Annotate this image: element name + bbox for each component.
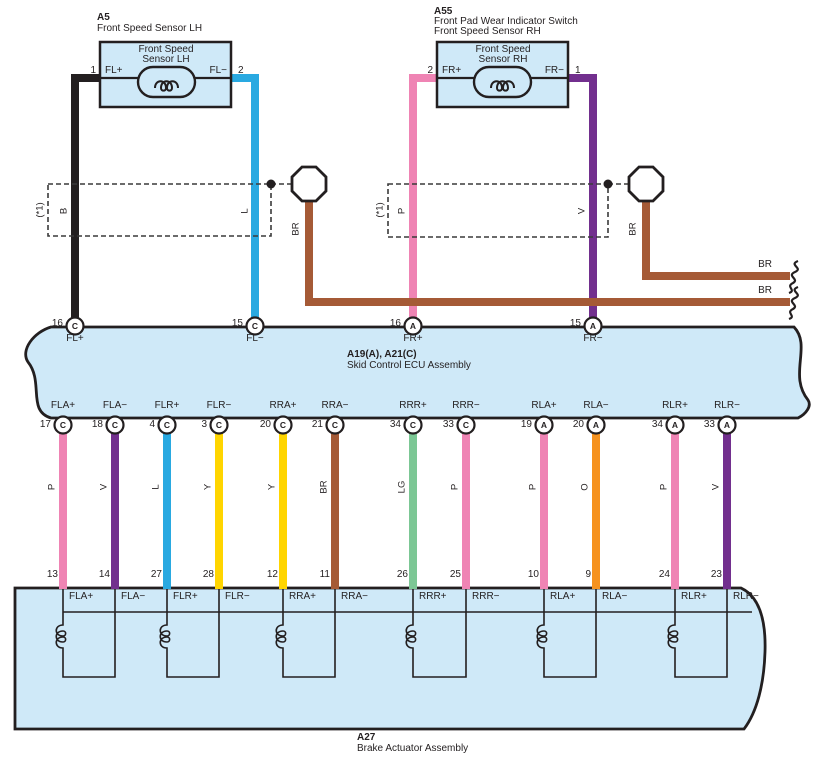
ecu-code: A19(A), A21(C): [347, 350, 417, 360]
wire-color-b: B: [59, 208, 69, 214]
br-run-upper-label: BR: [758, 260, 772, 270]
ecu-bottom-pin-label: RLR−: [714, 401, 740, 411]
wire-fl-plus-b: [75, 78, 101, 318]
wire-color-label: Y: [203, 484, 213, 490]
actuator-pin-label: RRR+: [419, 592, 447, 602]
actuator-pin-num: 27: [151, 570, 162, 580]
ecu-bottom-pin-num: 33: [443, 420, 454, 430]
ecu-top-pin-label: FR−: [583, 334, 602, 344]
wire-color-label: P: [528, 484, 538, 490]
sensor-lh-pin2-label: FL−: [209, 66, 227, 76]
actuator-pin-label: FLR−: [225, 592, 250, 602]
diagram-canvas: [0, 0, 815, 764]
actuator-pin-label: FLR+: [173, 592, 198, 602]
sensor-lh-inner-2: Sensor LH: [142, 55, 189, 65]
ecu-top-pin-label: FR+: [403, 334, 422, 344]
ecu-bottom-pin-num: 33: [704, 420, 715, 430]
sensor-lh-title: Front Speed Sensor LH: [97, 24, 202, 34]
actuator-pin-label: RLA+: [550, 592, 575, 602]
wire-color-label: O: [580, 483, 590, 490]
ecu-bottom-pin-num: 3: [201, 420, 207, 430]
sensor-rh-pin2-label: FR+: [442, 66, 461, 76]
ecu-bottom-pin-num: 21: [312, 420, 323, 430]
ecu-bottom-pin-conn: C: [280, 421, 286, 430]
actuator-pin-num: 13: [47, 570, 58, 580]
sensor-rh-pin2-num: 2: [427, 66, 433, 76]
sensor-rh-pin1-label: FR−: [545, 66, 564, 76]
ecu-bottom-pin-conn: C: [410, 421, 416, 430]
wire-color-label: P: [450, 484, 460, 490]
sensor-rh-inner-2: Sensor RH: [479, 55, 528, 65]
wiring-diagram: A5 Front Speed Sensor LH Front Speed Sen…: [0, 0, 815, 764]
ecu-bottom-pin-label: RLR+: [662, 401, 688, 411]
actuator-pin-num: 14: [99, 570, 110, 580]
ecu-bottom-pin-label: RRR−: [452, 401, 480, 411]
wire-color-label: BR: [319, 480, 329, 493]
ecu-top-pin-conn: A: [410, 322, 416, 331]
ecu-bottom-pin-conn: A: [724, 421, 730, 430]
ecu-name: Skid Control ECU Assembly: [347, 361, 471, 371]
ecu-bottom-pin-num: 34: [652, 420, 663, 430]
ecu-bottom-pin-num: 4: [149, 420, 155, 430]
ecu-bottom-pin-conn: C: [164, 421, 170, 430]
sensor-lh-pin1-label: FL+: [105, 66, 123, 76]
actuator-pin-label: RRA−: [341, 592, 368, 602]
actuator-band: [15, 588, 765, 729]
actuator-pin-num: 23: [711, 570, 722, 580]
junction-dot-right: [604, 180, 613, 189]
wire-color-l: L: [240, 208, 250, 213]
shield-box-left: [48, 184, 271, 236]
sensor-rh-title-2: Front Speed Sensor RH: [434, 27, 541, 37]
shield-left-note: (*1): [35, 202, 45, 217]
ecu-bottom-pin-conn: C: [60, 421, 66, 430]
sensor-lh-pin2-num: 2: [238, 66, 244, 76]
wire-fr-plus-p: [413, 78, 438, 318]
br-run-lower-label: BR: [758, 286, 772, 296]
actuator-pin-label: RRR−: [472, 592, 500, 602]
ecu-bottom-pin-conn: C: [216, 421, 222, 430]
ecu-bottom-pin-num: 18: [92, 420, 103, 430]
actuator-pin-num: 9: [585, 570, 591, 580]
actuator-pin-label: FLA+: [69, 592, 93, 602]
wire-color-br-right: BR: [628, 222, 638, 235]
ecu-bottom-pin-num: 20: [260, 420, 271, 430]
actuator-pin-num: 12: [267, 570, 278, 580]
ecu-top-pin-num: 15: [570, 319, 581, 329]
ecu-bottom-pin-label: FLR−: [207, 401, 232, 411]
wire-color-label: P: [47, 484, 57, 490]
actuator-pin-num: 10: [528, 570, 539, 580]
ecu-bottom-pin-conn: C: [463, 421, 469, 430]
actuator-pin-label: RLR+: [681, 592, 707, 602]
ecu-bottom-pin-label: RLA−: [583, 401, 608, 411]
actuator-pin-num: 11: [320, 570, 330, 580]
wire-color-label: V: [711, 484, 721, 490]
sensor-lh-pin1-num: 1: [90, 66, 96, 76]
actuator-pin-label: RLR−: [733, 592, 759, 602]
ecu-top-pin-conn: A: [590, 322, 596, 331]
actuator-pin-label: FLA−: [121, 592, 145, 602]
ecu-bottom-pin-conn: C: [332, 421, 338, 430]
sensor-lh-code: A5: [97, 13, 110, 23]
ecu-bottom-pin-label: FLA+: [51, 401, 75, 411]
ecu-bottom-pin-label: RRA+: [270, 401, 297, 411]
actuator-pin-num: 24: [659, 570, 670, 580]
shield-box-right: [388, 184, 608, 237]
wire-color-label: L: [151, 484, 161, 489]
wire-fl-minus-l: [230, 78, 255, 318]
ecu-bottom-pin-conn: C: [112, 421, 118, 430]
shield-octagon-right: [629, 167, 663, 201]
ecu-bottom-pin-num: 19: [521, 420, 532, 430]
wire-fr-minus-v: [567, 78, 593, 318]
actuator-pin-num: 25: [450, 570, 461, 580]
wire-color-label: P: [659, 484, 669, 490]
actuator-pin-label: RRA+: [289, 592, 316, 602]
ecu-top-pin-num: 15: [232, 319, 243, 329]
ecu-bottom-pin-conn: A: [672, 421, 678, 430]
wire-color-label: V: [99, 484, 109, 490]
ecu-bottom-pin-conn: A: [541, 421, 547, 430]
ecu-top-pin-num: 16: [52, 319, 63, 329]
ecu-bottom-pin-num: 34: [390, 420, 401, 430]
shield-octagon-left: [292, 167, 326, 201]
actuator-pin-num: 28: [203, 570, 214, 580]
wire-color-br-left: BR: [291, 222, 301, 235]
ecu-bottom-pin-num: 20: [573, 420, 584, 430]
ecu-top-pin-label: FL−: [246, 334, 264, 344]
ecu-top-pin-label: FL+: [66, 334, 84, 344]
ecu-bottom-pin-num: 17: [40, 420, 51, 430]
ecu-top-pin-conn: C: [72, 322, 78, 331]
ecu-top-pin-conn: C: [252, 322, 258, 331]
ecu-bottom-pin-label: RRR+: [399, 401, 427, 411]
actuator-code: A27: [357, 733, 375, 743]
wire-color-label: Y: [267, 484, 277, 490]
wire-color-v: V: [577, 208, 587, 214]
shield-right-note: (*1): [375, 202, 385, 217]
junction-dot-left: [267, 180, 276, 189]
actuator-pin-label: RLA−: [602, 592, 627, 602]
actuator-pin-num: 26: [397, 570, 408, 580]
actuator-name: Brake Actuator Assembly: [357, 744, 468, 754]
ecu-top-pin-num: 16: [390, 319, 401, 329]
wire-color-label: LG: [397, 481, 407, 494]
ecu-bottom-pin-label: RLA+: [531, 401, 556, 411]
ecu-bottom-pin-label: FLA−: [103, 401, 127, 411]
ecu-bottom-pin-label: RRA−: [322, 401, 349, 411]
ecu-bottom-pin-label: FLR+: [155, 401, 180, 411]
sensor-rh-pin1-num: 1: [575, 66, 581, 76]
wire-color-p: P: [397, 208, 407, 214]
ecu-bottom-pin-conn: A: [593, 421, 599, 430]
